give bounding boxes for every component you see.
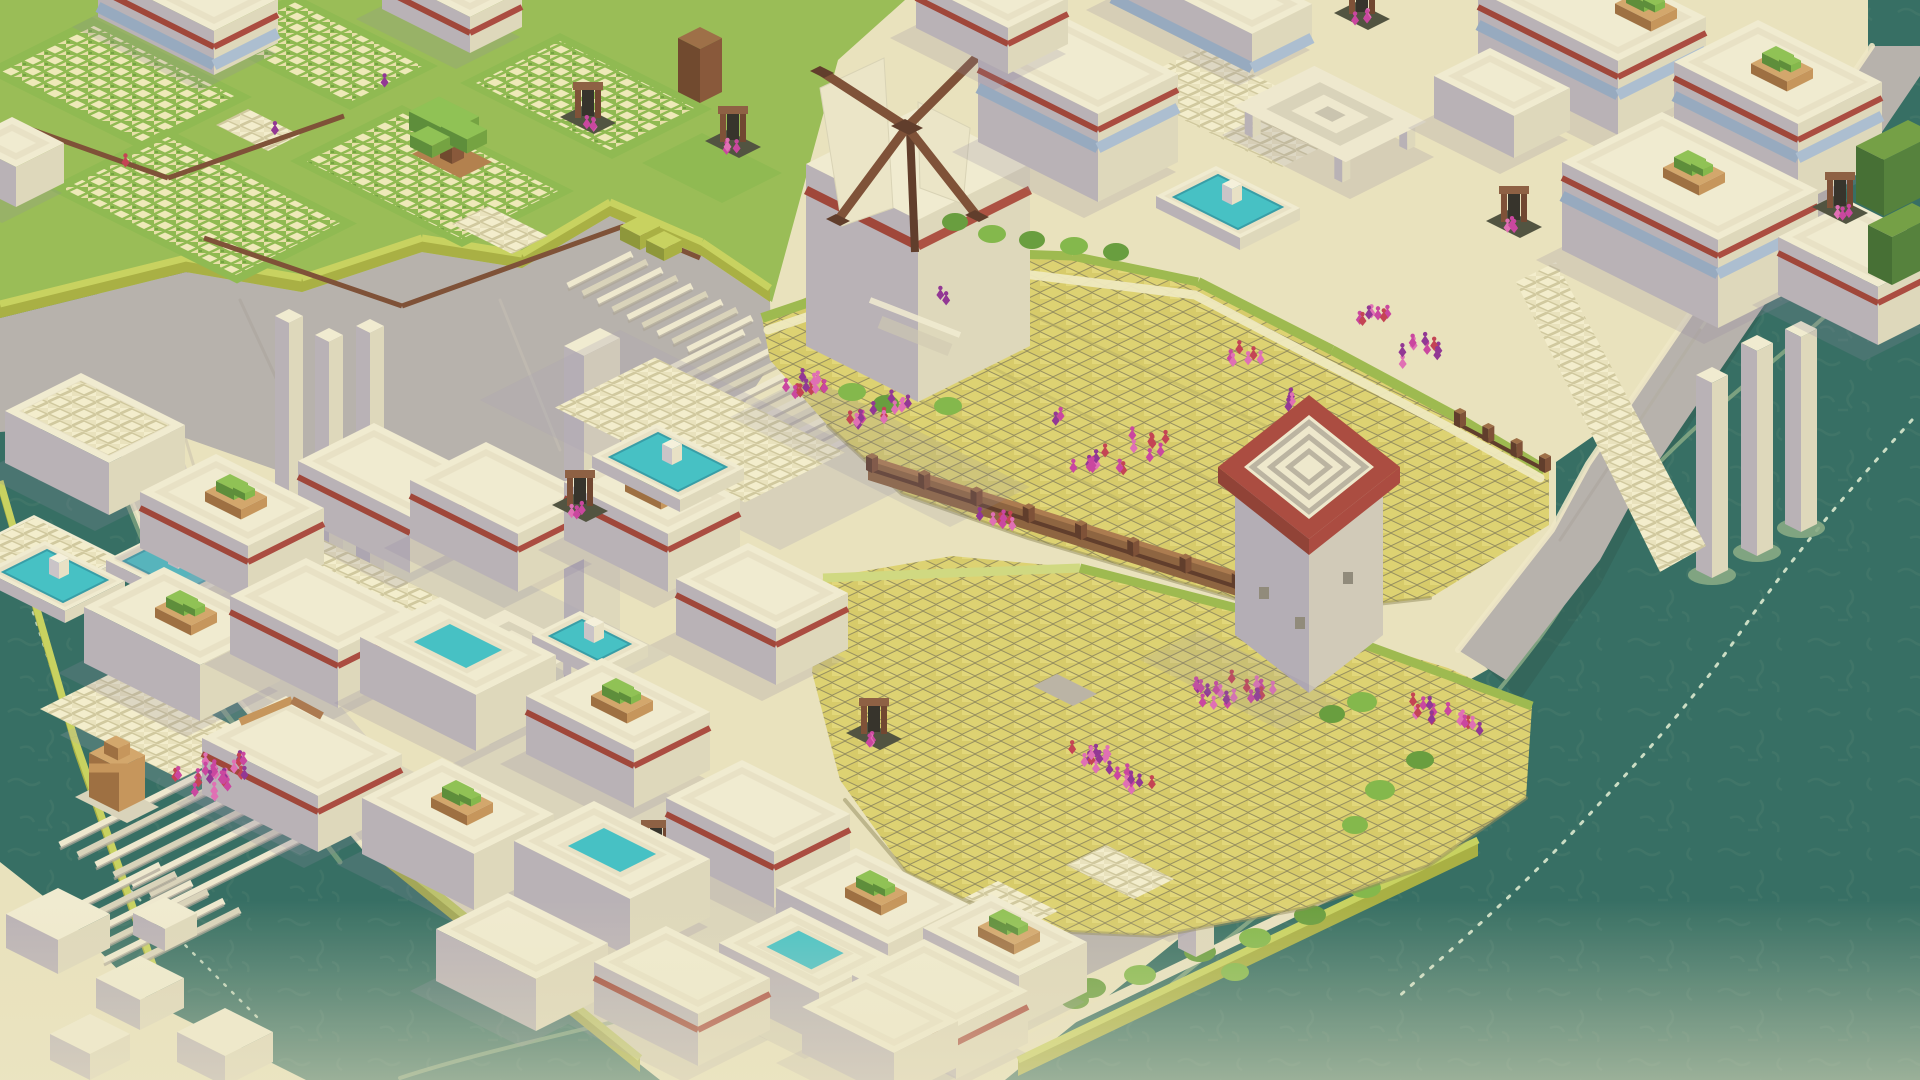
game-scene-svg [0,0,1920,1080]
layer-effects [0,0,1920,1080]
game-viewport[interactable] [0,0,1920,1080]
warm-grade [0,0,1920,1080]
